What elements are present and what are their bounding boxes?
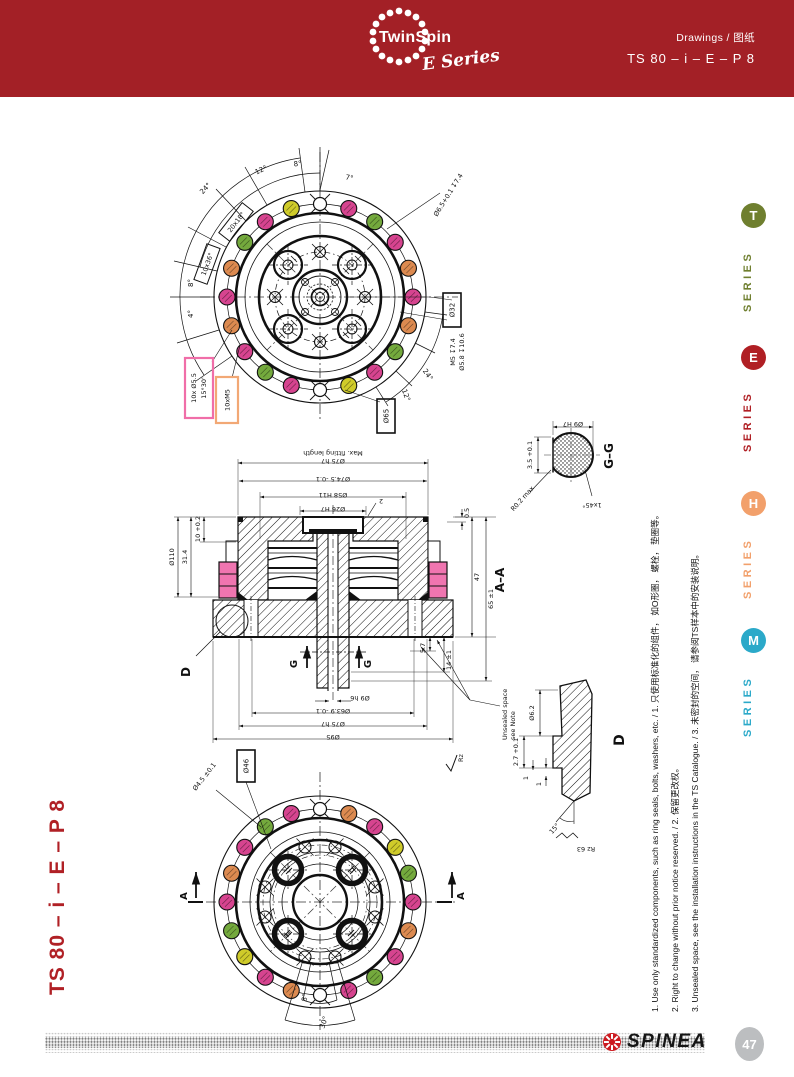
- section-view: Max. fitting length Ø75 h7 Ø74.5 -0.1 Ø5…: [168, 449, 517, 743]
- dim-label: 1: [535, 782, 543, 786]
- angle-label: 4°: [187, 310, 195, 318]
- dim-label: Ø74.5 -0.1: [316, 475, 350, 483]
- dim-label: Ø75 h7: [321, 457, 345, 465]
- dim-label: 47: [473, 573, 481, 581]
- dim-label: 10 +0.2: [194, 516, 202, 542]
- angle-label: 8°: [293, 160, 302, 169]
- series-badge-t: T: [741, 203, 766, 228]
- cbore-spec-label: Ø5.8 ↧10.6: [458, 333, 466, 370]
- dim-label: 1x45°: [582, 501, 602, 509]
- angle-label: 12°: [254, 164, 269, 177]
- top-view: 24° 12° 8° 7° 8° 4° 24° 12° 20x18° 10x36…: [170, 147, 466, 433]
- section-title: A–A: [493, 567, 507, 592]
- header-doc-type: Drawings / 图纸: [627, 30, 755, 45]
- dim-label: Rz 63: [577, 845, 595, 853]
- twinspin-logo: TwinSpin E Series: [365, 4, 515, 92]
- holes-spec-orange-box: 10xM5: [216, 377, 238, 423]
- dim-label: Ø6.2: [528, 705, 536, 720]
- svg-text:15°30': 15°30': [200, 377, 208, 399]
- surface-finish-label: Rz: [457, 753, 465, 762]
- dim-label: Ø75 h7: [321, 720, 345, 728]
- cut-label-g: G: [289, 660, 300, 668]
- page-number-badge: 47: [735, 1027, 764, 1061]
- detail-title: G–G: [602, 443, 616, 469]
- svg-text:Ø65: Ø65: [383, 409, 391, 423]
- angle-label: 8°: [187, 279, 195, 287]
- series-badge-e: E: [741, 345, 766, 370]
- page-title-vertical: TS 80 – i – E – P 8: [46, 799, 70, 995]
- brand-text: TwinSpin: [379, 29, 451, 46]
- dim-label: 31.4: [181, 550, 189, 564]
- note-label: Unsealed space: [501, 689, 509, 740]
- svg-text:20x18°: 20x18°: [226, 211, 247, 235]
- dim-label: 0.5: [463, 508, 471, 518]
- dim-label: 15°: [548, 822, 562, 836]
- angle-label: 8°: [300, 993, 309, 1002]
- series-badge-h: H: [741, 491, 766, 516]
- dim-label: 2: [379, 497, 383, 505]
- brand-sub-text: E Series: [420, 46, 501, 76]
- dim-label: Max. fitting length: [303, 449, 363, 457]
- dia65-box: Ø65: [377, 399, 395, 433]
- series-badge-m: M: [741, 628, 766, 653]
- detail-title: D: [612, 734, 628, 746]
- cut-label-g: G: [363, 660, 374, 668]
- angle-label: 24°: [198, 181, 212, 196]
- spinea-text: SPINEA: [627, 1031, 707, 1053]
- detail-gg: Ø9 H7 3.5 +0.1 R0.2 max 1x45° G–G: [509, 420, 616, 513]
- angle-label: 30°: [318, 1015, 329, 1029]
- series-label-m: SERIES: [742, 676, 754, 737]
- dim-label: Ø58 H11: [319, 491, 348, 499]
- dim-label: 1: [522, 776, 530, 780]
- header: TwinSpin E Series Drawings / 图纸 TS 80 – …: [0, 0, 794, 97]
- footnote-2: 2. Right to change without prior notice …: [670, 764, 680, 1012]
- spinea-gear-icon: [602, 1032, 622, 1052]
- detail-label-d: D: [179, 667, 193, 677]
- dia32-box: Ø32: [443, 293, 461, 327]
- angle-label: 12°: [400, 388, 412, 402]
- note-label: see Note: [509, 711, 517, 740]
- series-label-t: SERIES: [742, 251, 754, 312]
- header-model: TS 80 – i – E – P 8: [627, 51, 755, 66]
- dim-label: Ø9 H7: [563, 420, 583, 428]
- detail-d: Ø6.2 2.7 +0.1 1 1 15° Rz 63 D: [512, 680, 628, 853]
- svg-text:10x Ø5.5: 10x Ø5.5: [190, 373, 198, 403]
- thread-spec-label: M5 ↧7.4: [449, 338, 457, 366]
- seal-left: [219, 562, 237, 598]
- dim-label: 3.5 +0.1: [526, 441, 534, 469]
- series-label-e: SERIES: [742, 391, 754, 452]
- dim-label: Ø110: [168, 548, 176, 566]
- seal-right: [429, 562, 447, 598]
- footnote-1: 1. Use only standardized components, suc…: [650, 511, 660, 1012]
- svg-text:Ø46: Ø46: [243, 758, 251, 773]
- cut-label-a: A: [456, 892, 467, 900]
- bottom-view: A A Ø46 Ø4.5 ±0.1 8° 30°: [179, 750, 467, 1030]
- svg-text:Ø32: Ø32: [449, 303, 457, 317]
- svg-text:10x36°: 10x36°: [200, 252, 216, 277]
- dim-label: Ø26 H7: [321, 505, 345, 513]
- cut-label-a: A: [179, 892, 190, 900]
- logo-graphic: TwinSpin E Series: [365, 4, 515, 92]
- dim-label: Ø9 h6: [350, 694, 370, 702]
- hole-spec-label: Ø4.5 ±0.1: [191, 761, 218, 792]
- angle-label: 24°: [421, 367, 435, 382]
- spinea-logo: SPINEA: [602, 1030, 707, 1054]
- dim-label: 5.7: [419, 643, 427, 653]
- series-label-h: SERIES: [742, 538, 754, 599]
- dim-label: R0.2 max: [509, 484, 536, 513]
- footnote-3: 3. Unsealed space, see the installation …: [690, 550, 700, 1012]
- dim-label: 2.7 +0.1: [512, 738, 520, 766]
- catalogue-page: 24° 12° 8° 7° 8° 4° 24° 12° 20x18° 10x36…: [0, 0, 794, 1077]
- svg-text:10xM5: 10xM5: [224, 389, 232, 411]
- dim-label: Ø95: [326, 733, 339, 741]
- angle-label: 7°: [345, 173, 354, 182]
- dia46-box: Ø46: [237, 750, 255, 782]
- dim-label: Ø63.9 -0.1: [316, 707, 350, 715]
